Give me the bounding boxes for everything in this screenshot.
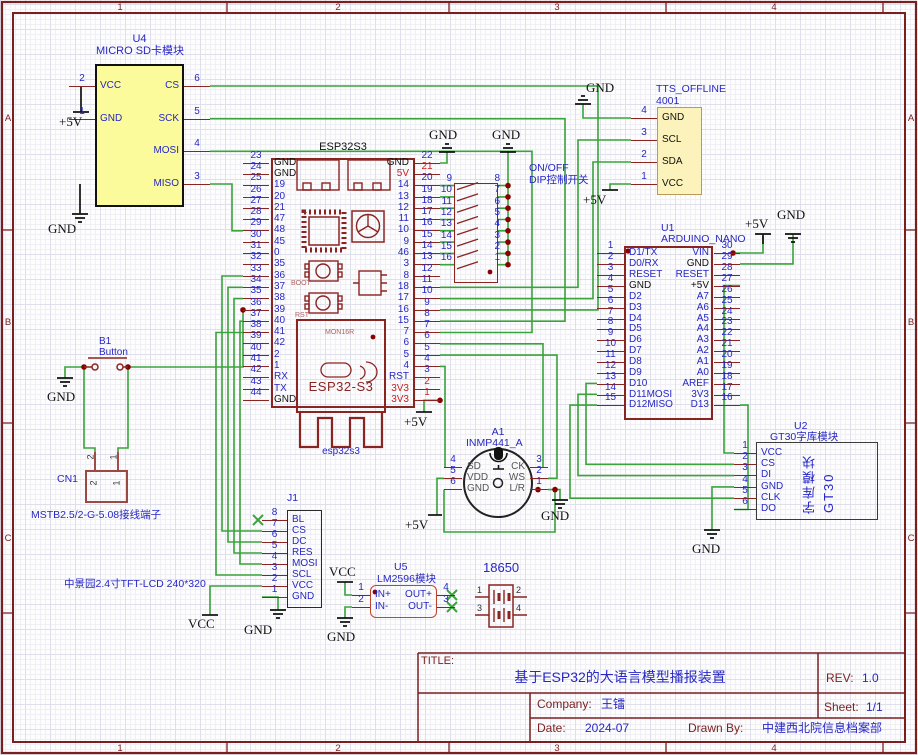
cn1-pin2-inner: 2: [89, 480, 99, 485]
cn1-pin1-number: 1: [109, 454, 119, 459]
pin-label: 21: [269, 203, 290, 213]
pin-label: 8: [398, 271, 414, 281]
pin-row[interactable]: 3SCL: [631, 129, 711, 151]
terminal-desc: MSTB2.5/2-G-5.08接线端子: [31, 510, 161, 522]
pin-row[interactable]: MOSI4: [100, 135, 210, 168]
pin-number: 3: [184, 171, 210, 185]
dip-label-2: DIP控制开关: [529, 175, 589, 187]
ruler-row-a-right: A: [906, 113, 916, 124]
pin-label: 5: [398, 350, 414, 360]
pin-label: 5V: [392, 169, 414, 179]
pin-number: 6: [184, 73, 210, 87]
pin-row[interactable]: 16: [428, 259, 452, 270]
button-ref: B1: [99, 336, 111, 347]
battery-pin3: 3: [477, 604, 482, 614]
pin-row[interactable]: 1VCC: [631, 173, 711, 195]
pin-row[interactable]: SCK5: [100, 103, 210, 136]
pin-label: A1: [692, 357, 714, 367]
ruler-col-3: 3: [537, 2, 577, 13]
pin-label: 4: [398, 361, 414, 371]
company-label: Company:: [537, 698, 592, 711]
ruler-col-4-bottom: 4: [754, 743, 794, 754]
dip-left-numbers[interactable]: 910111213141516: [428, 180, 452, 270]
schematic-sheet: 23GND24GND251926202721284729483045310323…: [0, 0, 918, 755]
pin-label: DC: [287, 537, 311, 547]
pin-label: 35: [269, 259, 290, 269]
esp32-rst-label: RST: [295, 312, 309, 320]
ruler-row-a: A: [3, 113, 13, 124]
ruler-col-3-bottom: 3: [537, 743, 577, 754]
mic-right-pins[interactable]: CK3WS2L/R1: [462, 461, 548, 495]
pin-label: 2: [269, 350, 285, 360]
rev-label: REV:: [826, 672, 854, 685]
pin-label: GND: [269, 169, 301, 179]
dip-label-1: ON/OFF: [529, 163, 569, 175]
pin-label: MOSI: [148, 146, 184, 156]
pin-label: 0: [269, 248, 285, 258]
titleblock-title-label: TITLE:: [421, 655, 454, 667]
pin-label: 10: [393, 225, 414, 235]
pin-label: 3: [398, 259, 414, 269]
pin-label: BL: [287, 515, 309, 525]
ruler-col-4: 4: [754, 2, 794, 13]
sheet-label: Sheet:: [824, 701, 859, 714]
gt30-name: GT30字库模块: [770, 432, 838, 444]
pin-label: RX: [269, 372, 293, 382]
pin-label: 41: [269, 327, 290, 337]
ruler-row-c-right: C: [906, 533, 916, 544]
arduino-name: ARDUINO_NANO: [661, 234, 746, 246]
pin-label: 18: [393, 282, 414, 292]
gt30-body-text-2: GT30: [822, 453, 836, 513]
net-label-5v: +5V: [59, 115, 82, 129]
pin-number: 15: [597, 392, 624, 406]
terminal-block-body[interactable]: [85, 470, 128, 503]
sdcard-right-pins[interactable]: CS6SCK5MOSI4MISO3: [100, 70, 210, 200]
pin-number: 4: [631, 105, 657, 119]
pin-label: RST: [384, 372, 414, 382]
pin-label: 1: [269, 361, 285, 371]
pin-label: RES: [287, 548, 318, 558]
net-label-5v: +5V: [405, 518, 428, 532]
pin-number: 6: [444, 476, 462, 490]
pin-label: 15: [393, 316, 414, 326]
lcd-desc: 中景园2.4寸TFT-LCD 240*320: [64, 579, 206, 591]
tts-pins[interactable]: 4GND3SCL2SDA1VCC: [631, 107, 711, 195]
pin-label: 11: [394, 214, 414, 224]
pin-row[interactable]: L/R1: [462, 484, 548, 495]
pin-number: 5: [184, 106, 210, 120]
pin-label: CS: [160, 81, 184, 91]
pin-label: D13: [686, 400, 714, 410]
pin-label: AREF: [677, 379, 714, 389]
pin-number: 4: [184, 138, 210, 152]
lcd-connector-pins[interactable]: 8BL7CS6DC5RES4MOSI3SCL2VCC1GND: [262, 514, 352, 602]
pin-label: 45: [269, 237, 290, 247]
pin-label: 40: [269, 316, 290, 326]
pin-label: OUT+: [400, 590, 437, 600]
pin-label: GND: [657, 113, 689, 123]
pin-number: 2: [69, 73, 95, 87]
tts-ref: TTS_OFFLINE: [656, 84, 726, 96]
mic-name: INMP441_A: [466, 438, 523, 450]
pin-label: DO: [756, 504, 781, 514]
pin-label: 36: [269, 271, 290, 281]
lm2596-ref: U5: [394, 562, 407, 574]
pin-label: A2: [692, 346, 714, 356]
button-name: Button: [99, 347, 128, 358]
titleblock-title: 基于ESP32的大语言模型播报装置: [430, 670, 810, 685]
pin-number: 44: [243, 387, 269, 401]
date-value: 2024-07: [585, 722, 629, 735]
pin-label: 12: [393, 203, 414, 213]
pin-label: A4: [692, 324, 714, 334]
pin-label: 20: [269, 192, 290, 202]
date-label: Date:: [537, 722, 566, 735]
net-label-gnd: GND: [777, 208, 805, 222]
pin-label: A5: [692, 314, 714, 324]
esp32-header: ESP32S3: [271, 141, 415, 153]
net-label-gnd: GND: [586, 81, 614, 95]
pin-label: A7: [692, 292, 714, 302]
drawn-by-value: 中建西北院信息档案部: [762, 722, 882, 735]
battery-name: 18650: [483, 561, 519, 575]
pin-label: MOSI: [287, 559, 323, 569]
net-label-gnd: GND: [541, 509, 569, 523]
pin-label: GND: [382, 158, 414, 168]
pin-label: 46: [393, 248, 414, 258]
pin-number: 1: [262, 584, 287, 598]
net-label-gnd: GND: [244, 623, 272, 637]
net-label-5v: +5V: [404, 415, 427, 429]
pin-label: A3: [692, 335, 714, 345]
ruler-col-1: 1: [100, 2, 140, 13]
esp32-module-logo-text: MON16R: [325, 329, 354, 337]
ruler-row-b-right: B: [906, 317, 916, 328]
sheet-value: 1/1: [866, 701, 883, 714]
net-label-5v: +5V: [745, 217, 768, 231]
pin-label: GND: [682, 259, 714, 269]
net-label-gnd: GND: [48, 222, 76, 236]
pin-label: 6: [398, 338, 414, 348]
arduino-right-pins[interactable]: VIN30GND29RESET28+5V27A726A625A524A423A3…: [630, 248, 740, 411]
net-label-gnd: GND: [47, 390, 75, 404]
pin-label: 13: [393, 192, 414, 202]
lcd-connector-ref: J1: [287, 493, 298, 505]
pin-label: VCC: [657, 179, 688, 189]
pin-label: 48: [269, 225, 290, 235]
pin-label: 37: [269, 282, 290, 292]
pin-number: 2: [631, 149, 657, 163]
pin-label: 38: [269, 293, 290, 303]
pin-number: 1: [486, 252, 502, 265]
pin-number: 1: [631, 171, 657, 185]
pin-number: 6: [734, 496, 756, 510]
pin-number: 1: [414, 387, 440, 401]
pin-label: 9: [398, 237, 414, 247]
gt30-body-text-1: 字库模块: [803, 450, 817, 514]
battery-pin1: 1: [477, 586, 482, 596]
sdcard-ref: U4: [95, 33, 184, 45]
battery-pin4: 4: [516, 604, 521, 614]
pin-label: MISO: [148, 179, 184, 189]
pin-label: 16: [393, 305, 414, 315]
pin-label: 3V3: [386, 395, 414, 405]
pin-label: A6: [692, 303, 714, 313]
pin-label: 19: [269, 180, 290, 190]
esp32-boot-label: BOOT: [291, 280, 311, 288]
esp32-module-label: ESP32-S3: [297, 380, 385, 394]
ruler-row-b: B: [3, 317, 13, 328]
net-label-gnd: GND: [327, 630, 355, 644]
pin-number: 16: [428, 252, 454, 265]
ruler-col-1-bottom: 1: [100, 743, 140, 754]
pin-row[interactable]: 1GND: [262, 591, 352, 602]
pin-label: CK: [506, 462, 530, 472]
pin-label: SCL: [287, 570, 316, 580]
pin-label: 3V3: [686, 390, 714, 400]
ruler-col-2-bottom: 2: [318, 743, 358, 754]
pin-label: 42: [269, 338, 290, 348]
terminal-ref: CN1: [57, 474, 78, 486]
pin-label: 7: [398, 327, 414, 337]
pin-label: 14: [393, 180, 414, 190]
pin-label: WS: [504, 473, 530, 483]
cn1-pin1-inner: 1: [112, 480, 122, 485]
pin-label: +5V: [686, 281, 714, 291]
tts-name: 4001: [656, 96, 679, 108]
pin-number: 3: [631, 127, 657, 141]
pin-label: SCL: [657, 135, 686, 145]
pin-label: CLK: [756, 493, 785, 503]
pin-row[interactable]: D1316: [630, 400, 740, 411]
net-label-gnd: GND: [692, 542, 720, 556]
pin-label: GND: [269, 395, 301, 405]
esp32-right-pins[interactable]: GND225V211420131912181117101691546143138…: [320, 157, 440, 406]
pin-label: SDA: [657, 157, 688, 167]
pin-label: GND: [756, 482, 788, 492]
button-symbol: [84, 358, 128, 370]
pin-label: RESET: [671, 270, 714, 280]
pin-row[interactable]: OUT-3: [347, 601, 455, 613]
battery-pin2: 2: [516, 586, 521, 596]
pin-label: CS: [756, 459, 780, 469]
net-label-vcc: VCC: [188, 617, 215, 631]
pin-label: GND: [287, 592, 319, 602]
pin-row[interactable]: 3V31: [320, 394, 440, 405]
pin-label: CS: [287, 526, 311, 536]
pin-label: 47: [269, 214, 290, 224]
sdcard-name: MICRO SD卡模块: [85, 45, 195, 57]
esp32-module-sublabel: esp32s3: [311, 446, 371, 457]
pin-label: GND: [269, 158, 301, 168]
pin-label: VIN: [687, 248, 714, 258]
net-label-vcc: VCC: [329, 565, 356, 579]
dip-right-numbers[interactable]: 87654321: [486, 180, 500, 270]
rev-value: 1.0: [862, 672, 879, 685]
pin-label: TX: [269, 384, 292, 394]
pin-label: A0: [692, 368, 714, 378]
pin-row[interactable]: CS6: [100, 70, 210, 103]
pin-row[interactable]: 4GND: [631, 107, 711, 129]
pin-label: SCK: [153, 114, 184, 124]
pin-row[interactable]: 2SDA: [631, 151, 711, 173]
lm2596-name: LM2596模块: [377, 574, 436, 586]
pin-row[interactable]: MISO3: [100, 168, 210, 201]
drawn-by-label: Drawn By:: [688, 722, 743, 735]
pin-number: 3: [437, 594, 455, 608]
pin-label: 39: [269, 305, 290, 315]
pin-label: 17: [393, 293, 414, 303]
pin-row[interactable]: 1: [486, 259, 500, 270]
lm2596-right-pins[interactable]: OUT+4OUT-3: [347, 589, 455, 613]
pin-label: 3V3: [386, 384, 414, 394]
net-label-gnd: GND: [429, 128, 457, 142]
company-value: 王镭: [601, 698, 625, 711]
ruler-col-2: 2: [318, 2, 358, 13]
pin-label: L/R: [504, 484, 530, 494]
pin-label: DI: [756, 470, 776, 480]
ruler-row-c: C: [3, 533, 13, 544]
pin-label: VCC: [756, 448, 787, 458]
cn1-pin2-number: 2: [86, 454, 96, 459]
pin-label: VCC: [287, 581, 318, 591]
net-label-5v: +5V: [583, 193, 606, 207]
pin-label: OUT-: [403, 602, 437, 612]
pin-number: 16: [714, 392, 740, 406]
pin-number: 1: [530, 476, 548, 490]
net-label-gnd: GND: [492, 128, 520, 142]
